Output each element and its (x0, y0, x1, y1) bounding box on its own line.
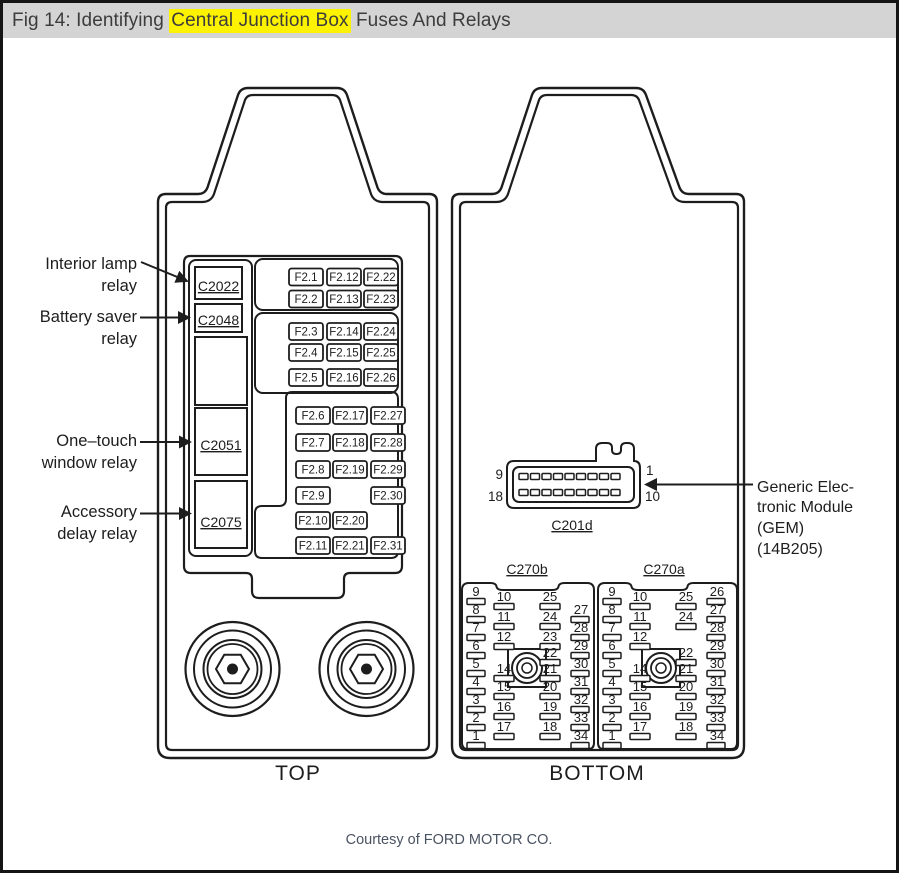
pin-number-C270a-29: 29 (710, 638, 724, 653)
fuse-label: F2.27 (373, 411, 402, 423)
c201d-pin1-label: 1 (646, 463, 654, 478)
c201d-pin (554, 474, 563, 480)
pin-terminal (707, 743, 725, 749)
courtesy-text: Courtesy of FORD MOTOR CO. (346, 832, 553, 848)
fuse-label: F2.13 (329, 294, 358, 306)
c201d-pin18-label: 18 (488, 489, 503, 504)
c201d-pin (542, 474, 551, 480)
pin-number-C270a-32: 32 (710, 692, 724, 707)
pin-number-C270b-31: 31 (574, 674, 588, 689)
pin-number-C270a-25: 25 (679, 589, 693, 604)
pin-terminal (603, 743, 621, 749)
c201d-pin (611, 474, 620, 480)
pin-terminal (676, 734, 696, 740)
c201d-pin (588, 474, 597, 480)
fuse-label: F2.23 (366, 294, 395, 306)
pin-number-C270b-2: 2 (472, 710, 479, 725)
fuse-label: F2.5 (294, 373, 317, 385)
figure-frame: C2022 C2048 C2051 C2075 F2.1F2.12F2.22F2… (0, 0, 899, 873)
connector-label-c2051: C2051 (200, 437, 241, 453)
pin-number-C270a-22: 22 (679, 645, 693, 660)
c201d-inner-outline (513, 467, 634, 502)
pin-number-C270b-23: 23 (543, 629, 557, 644)
pin-number-C270b-5: 5 (472, 656, 479, 671)
fuse-label: F2.22 (366, 272, 395, 284)
pin-terminal (494, 644, 514, 650)
c201d-pin (600, 474, 609, 480)
pin-number-C270b-29: 29 (574, 638, 588, 653)
c201d-pin9-label: 9 (495, 467, 503, 482)
fuse-label: F2.20 (335, 516, 364, 528)
fuse-label: F2.26 (366, 373, 395, 385)
c201d-pin (577, 474, 586, 480)
pin-number-C270a-24: 24 (679, 609, 693, 624)
pin-number-C270b-3: 3 (472, 692, 479, 707)
pin-number-C270a-6: 6 (608, 638, 615, 653)
pin-number-C270b-27: 27 (574, 602, 588, 617)
label-one-touch-window-relay-line1: One–touch (56, 432, 137, 450)
pin-number-C270b-20: 20 (543, 679, 557, 694)
fuse-label: F2.28 (373, 438, 402, 450)
pin-number-C270b-16: 16 (497, 699, 511, 714)
fuse-label: F2.17 (335, 411, 364, 423)
fuse-label: F2.19 (335, 465, 364, 477)
pin-number-C270b-19: 19 (543, 699, 557, 714)
c201d-pin (531, 490, 540, 496)
pin-number-C270b-12: 12 (497, 629, 511, 644)
pin-number-C270a-20: 20 (679, 679, 693, 694)
pin-terminal (494, 734, 514, 740)
c201d-pin (519, 490, 528, 496)
c270b-bolt (512, 653, 542, 683)
fuse-label: F2.3 (294, 327, 317, 339)
pin-number-C270b-9: 9 (472, 584, 479, 599)
pin-number-C270a-7: 7 (608, 620, 615, 635)
relay-box-empty (195, 337, 247, 405)
pin-number-C270a-8: 8 (608, 602, 615, 617)
fuse-label: F2.12 (329, 272, 358, 284)
fuse-label: F2.21 (335, 541, 364, 553)
c201d-pin10-label: 10 (645, 489, 660, 504)
connector-label-c270a: C270a (643, 561, 684, 577)
pin-number-C270b-18: 18 (543, 719, 557, 734)
c201d-pin (611, 490, 620, 496)
fuse-label: F2.15 (329, 348, 358, 360)
pin-number-C270b-6: 6 (472, 638, 479, 653)
pin-number-C270b-21: 21 (543, 661, 557, 676)
pin-number-C270a-30: 30 (710, 656, 724, 671)
c201d-pin (554, 490, 563, 496)
mounting-bolt-left (186, 622, 280, 716)
pin-number-C270a-4: 4 (608, 674, 615, 689)
pin-number-C270a-21: 21 (679, 661, 693, 676)
pin-number-C270a-31: 31 (710, 674, 724, 689)
mounting-bolt-right (320, 622, 414, 716)
pin-number-C270a-3: 3 (608, 692, 615, 707)
fuse-label: F2.7 (301, 438, 324, 450)
connector-label-c2075: C2075 (200, 514, 241, 530)
bottom-view-caption: BOTTOM (549, 762, 644, 785)
figure-title-prefix: Fig 14: Identifying (12, 10, 169, 32)
c201d-pin (565, 490, 574, 496)
pin-terminal (630, 734, 650, 740)
top-view-caption: TOP (275, 762, 321, 785)
pin-number-C270a-17: 17 (633, 719, 647, 734)
pin-number-C270a-5: 5 (608, 656, 615, 671)
arrow-interior-lamp-relay (141, 262, 187, 281)
pin-number-C270b-24: 24 (543, 609, 557, 624)
pin-terminal (571, 743, 589, 749)
figure-title-highlight: Central Junction Box (169, 9, 350, 33)
pin-number-C270a-34: 34 (710, 728, 724, 743)
pin-number-C270a-18: 18 (679, 719, 693, 734)
pin-number-C270b-28: 28 (574, 620, 588, 635)
pin-number-C270b-14: 14 (497, 661, 511, 676)
label-interior-lamp-relay-line2: relay (101, 277, 138, 295)
label-one-touch-window-relay-line2: window relay (41, 454, 138, 472)
pin-number-C270b-25: 25 (543, 589, 557, 604)
fuse-label: F2.18 (335, 438, 364, 450)
connector-label-c2022: C2022 (198, 278, 239, 294)
pin-number-C270b-10: 10 (497, 589, 511, 604)
label-battery-saver-relay-line1: Battery saver (40, 308, 138, 326)
pin-number-C270b-22: 22 (543, 645, 557, 660)
fuse-label: F2.8 (301, 465, 324, 477)
pin-number-C270a-15: 15 (633, 679, 647, 694)
junction-box-diagram: C2022 C2048 C2051 C2075 F2.1F2.12F2.22F2… (3, 3, 896, 870)
fuse-label: F2.16 (329, 373, 358, 385)
pin-number-C270b-33: 33 (574, 710, 588, 725)
pin-number-C270b-1: 1 (472, 728, 479, 743)
pin-terminal (676, 624, 696, 630)
pin-number-C270b-17: 17 (497, 719, 511, 734)
fuse-label: F2.6 (301, 411, 324, 423)
pin-number-C270b-30: 30 (574, 656, 588, 671)
fuse-label: F2.14 (329, 327, 359, 339)
label-battery-saver-relay-line2: relay (101, 330, 138, 348)
pin-number-C270b-8: 8 (472, 602, 479, 617)
pin-number-C270b-15: 15 (497, 679, 511, 694)
pin-number-C270a-1: 1 (608, 728, 615, 743)
pin-number-C270b-4: 4 (472, 674, 479, 689)
pin-number-C270a-33: 33 (710, 710, 724, 725)
pin-number-C270a-10: 10 (633, 589, 647, 604)
pin-number-C270a-28: 28 (710, 620, 724, 635)
label-accessory-delay-relay-line2: delay relay (57, 525, 138, 543)
pin-terminal (630, 644, 650, 650)
pin-terminal (540, 734, 560, 740)
c201d-pin (600, 490, 609, 496)
connector-label-c2048: C2048 (198, 312, 239, 328)
pin-number-C270a-27: 27 (710, 602, 724, 617)
c201d-pin (542, 490, 551, 496)
pin-number-C270a-19: 19 (679, 699, 693, 714)
figure-title-suffix: Fuses And Relays (351, 10, 511, 32)
fuse-label: F2.30 (373, 491, 402, 503)
pin-number-C270a-2: 2 (608, 710, 615, 725)
c201d-pin (531, 474, 540, 480)
pin-number-C270b-34: 34 (574, 728, 588, 743)
figure-title-bar: Fig 14: Identifying Central Junction Box… (3, 3, 896, 38)
c201d-pin (565, 474, 574, 480)
pin-number-C270a-26: 26 (710, 584, 724, 599)
pin-number-C270a-16: 16 (633, 699, 647, 714)
connector-label-c270b: C270b (506, 561, 547, 577)
fuse-label: F2.29 (373, 465, 402, 477)
fuse-label: F2.31 (373, 541, 402, 553)
pin-number-C270a-11: 11 (633, 609, 647, 624)
label-gem-line4: (14B205) (757, 541, 823, 558)
pin-number-C270b-7: 7 (472, 620, 479, 635)
pin-number-C270a-12: 12 (633, 629, 647, 644)
fuse-label: F2.24 (366, 327, 396, 339)
label-accessory-delay-relay-line1: Accessory (61, 503, 138, 521)
label-gem-line2: tronic Module (757, 499, 853, 516)
pin-number-C270a-9: 9 (608, 584, 615, 599)
fuse-label: F2.4 (294, 348, 318, 360)
fuse-label: F2.9 (301, 491, 324, 503)
fuse-label: F2.11 (299, 541, 328, 553)
pin-number-C270b-32: 32 (574, 692, 588, 707)
pin-number-C270a-14: 14 (633, 661, 647, 676)
label-interior-lamp-relay-line1: Interior lamp (45, 255, 137, 273)
c201d-pin (577, 490, 586, 496)
c201d-pin (588, 490, 597, 496)
fuse-label: F2.10 (298, 516, 327, 528)
fuse-label: F2.1 (294, 272, 317, 284)
fuse-label: F2.25 (366, 348, 395, 360)
label-gem-line1: Generic Elec- (757, 479, 854, 496)
connector-label-c201d: C201d (551, 517, 592, 533)
label-gem-line3: (GEM) (757, 520, 804, 537)
pin-terminal (467, 743, 485, 749)
fuse-label: F2.2 (294, 294, 317, 306)
c201d-pin (519, 474, 528, 480)
pin-number-C270b-11: 11 (497, 609, 511, 624)
